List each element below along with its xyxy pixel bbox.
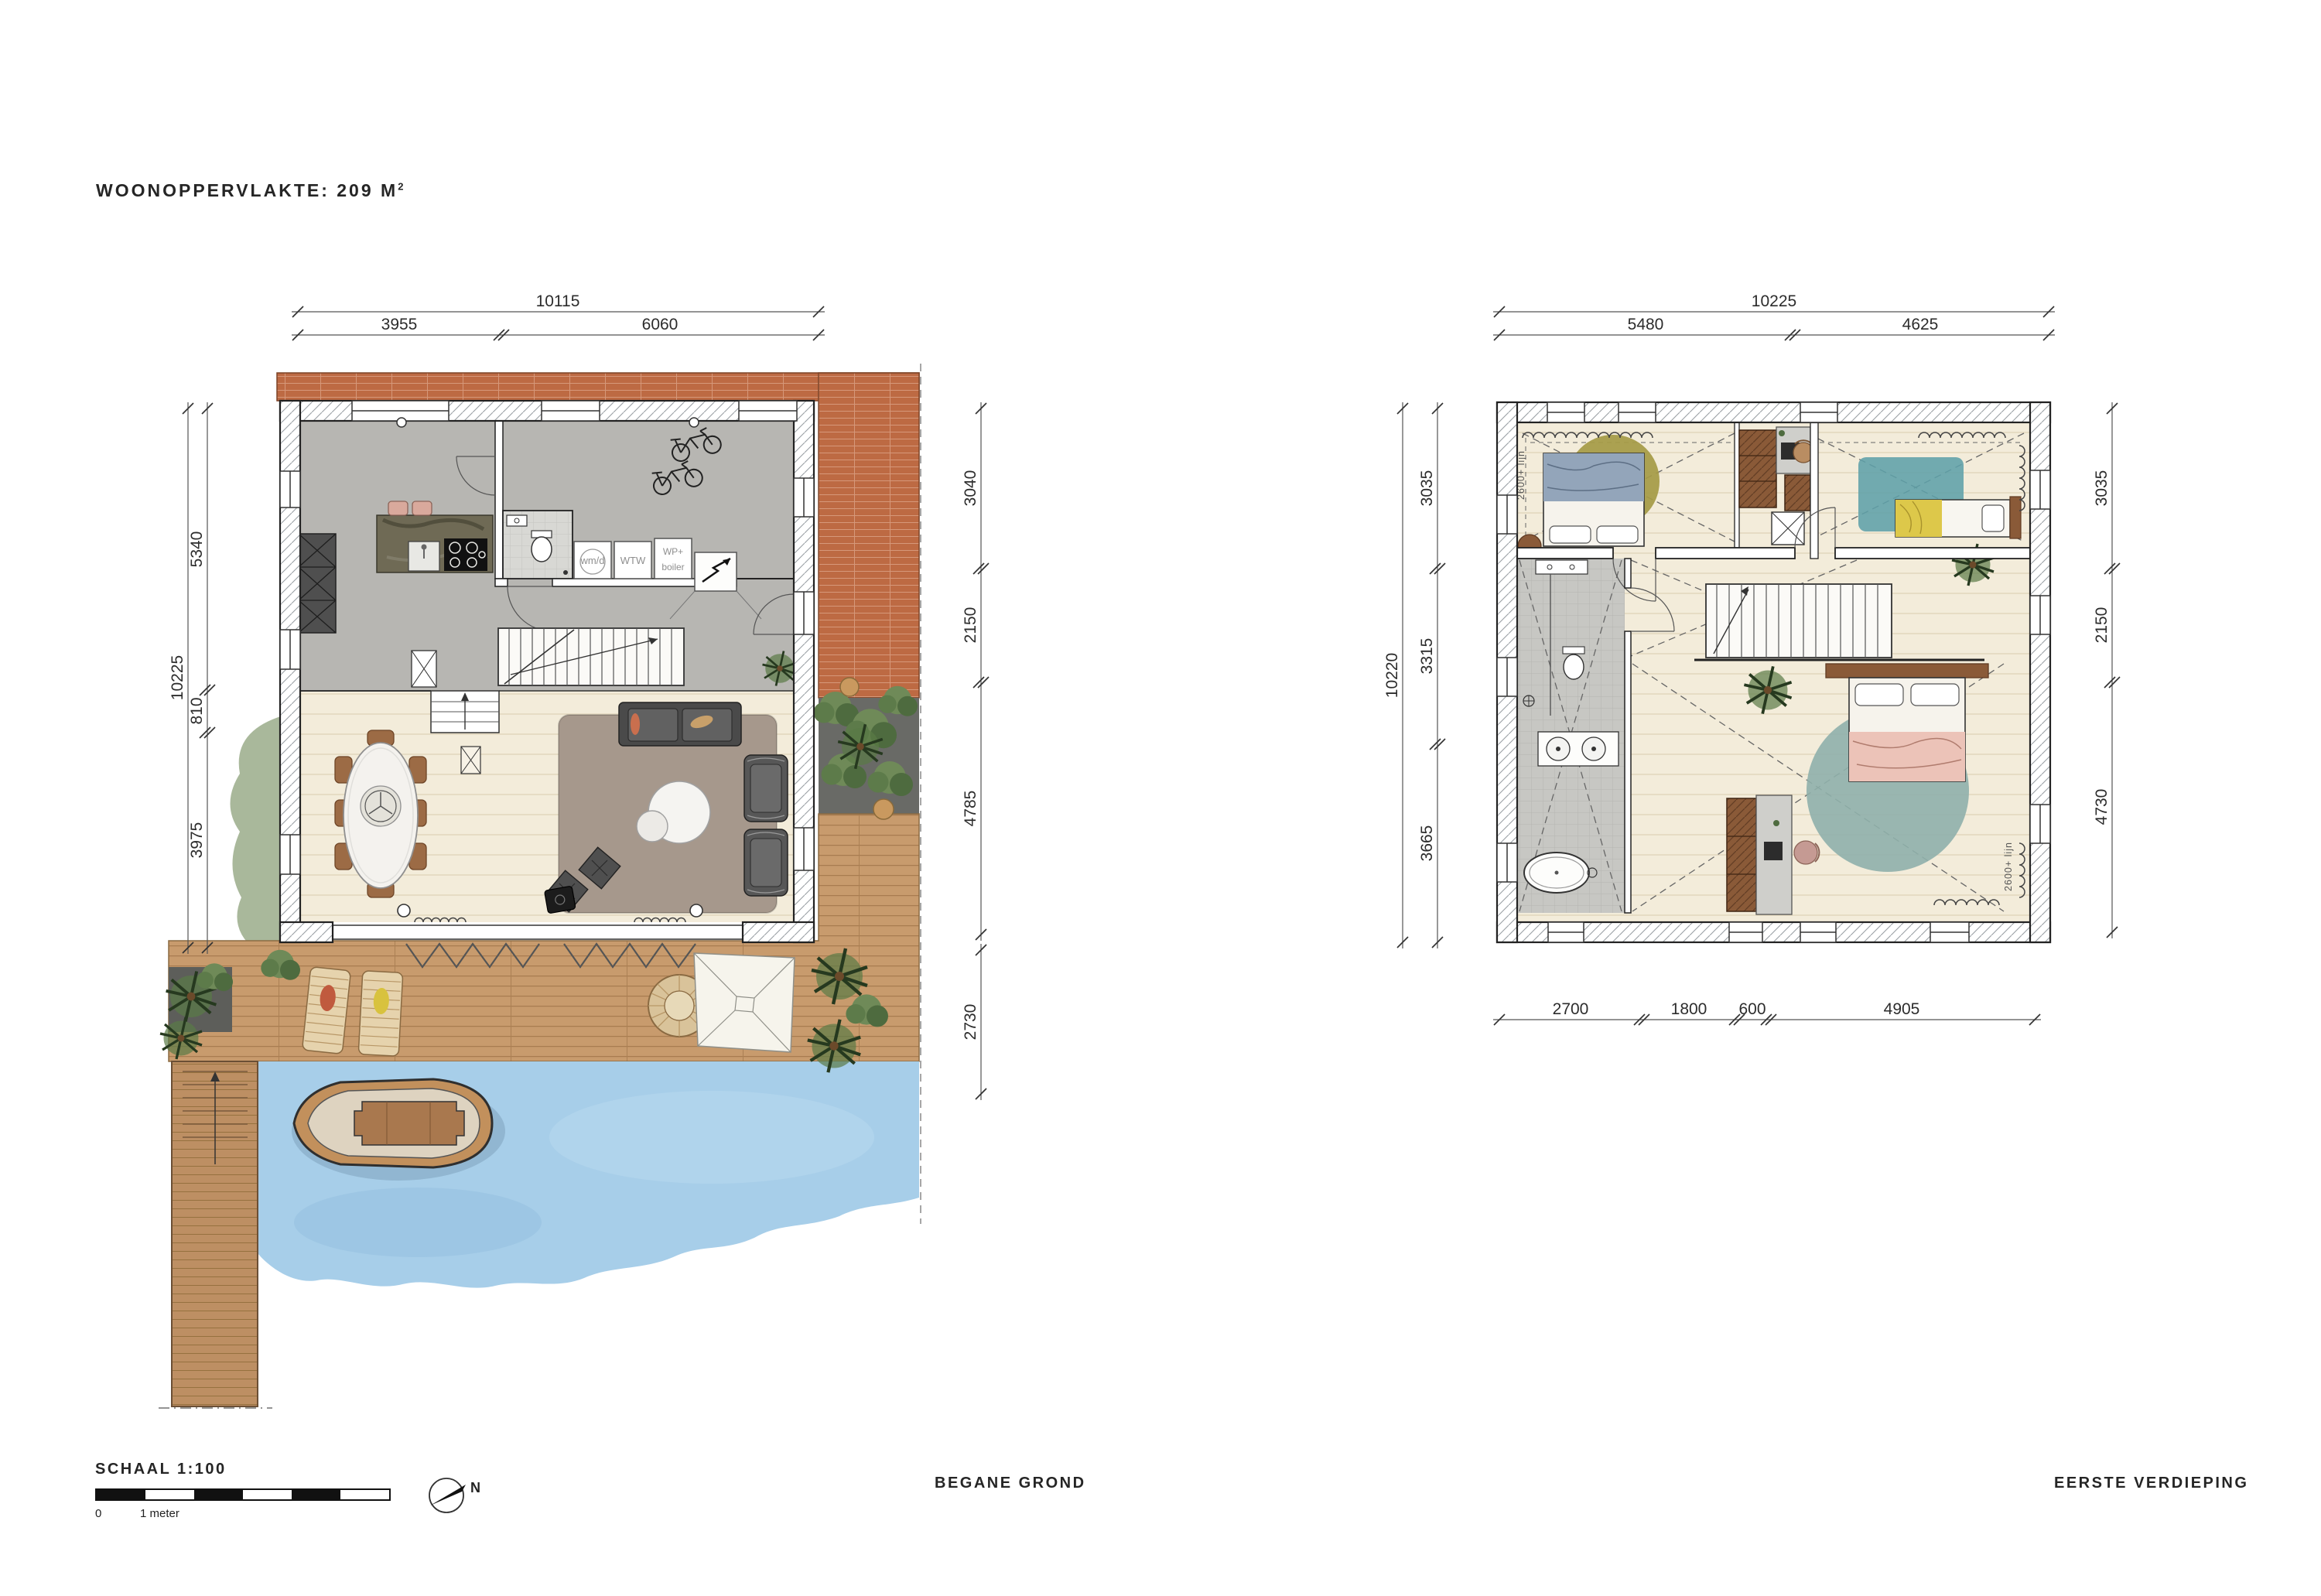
wc-room	[503, 511, 573, 579]
dim-label: 5480	[1628, 316, 1664, 333]
plan-drawing: wm/d WTW WP+ boiler	[0, 0, 2321, 1596]
bath-shelf	[1536, 560, 1588, 574]
dim-label: 4785	[962, 791, 979, 827]
dim-label: 10225	[1752, 292, 1796, 310]
interior-wall	[495, 421, 503, 579]
height-line-annotation: 2600+ lijn	[2003, 842, 2014, 891]
toilet	[1564, 654, 1584, 679]
washer-label: wm/d	[579, 555, 604, 566]
bed-master	[1826, 664, 1988, 781]
scale-bar-segment	[243, 1490, 292, 1499]
floorplan-sheet: wm/d WTW WP+ boiler	[0, 0, 2321, 1596]
dim-label: 600	[1738, 1000, 1766, 1018]
north-label: N	[470, 1480, 480, 1495]
dim-label: 10220	[1383, 653, 1401, 698]
armchair	[744, 755, 788, 822]
sun-lounger	[302, 967, 350, 1054]
dim-label: 4625	[1902, 316, 1939, 333]
desk-area	[1776, 427, 1813, 473]
lounge-area	[544, 702, 788, 914]
dim-label: 3665	[1418, 825, 1436, 862]
bed-single	[1895, 497, 2021, 538]
dim-label: 3975	[188, 822, 206, 859]
side-table	[637, 811, 668, 842]
bar-stool	[412, 501, 432, 515]
scale-bar-segment	[145, 1490, 194, 1499]
dim-label: 2150	[962, 607, 979, 644]
scale-bar-segment	[340, 1490, 389, 1499]
armchair	[744, 829, 788, 896]
scale-bar-segment	[292, 1490, 340, 1499]
title-text: WOONOPPERVLAKTE: 209 M	[96, 180, 398, 200]
dim-label: 2150	[2093, 607, 2111, 644]
dim-label: 2730	[962, 1004, 979, 1041]
storage-cabinet	[299, 534, 336, 633]
scale-meter-label: 1 meter	[140, 1507, 179, 1520]
title-sup: 2	[398, 180, 405, 192]
toilet	[532, 537, 552, 562]
entry-steps	[431, 691, 499, 733]
wardrobe	[1785, 475, 1810, 511]
appliance-wtw: WTW	[614, 542, 651, 579]
dim-label: 1800	[1671, 1000, 1707, 1018]
dim-label: 3315	[1418, 638, 1436, 675]
dim-label: 10225	[169, 655, 186, 700]
wardrobe	[1739, 430, 1776, 508]
scale-bar-segment	[194, 1490, 243, 1499]
dim-label: 3040	[962, 470, 979, 507]
wtw-label: WTW	[620, 555, 646, 566]
boat	[292, 1079, 505, 1181]
dim-label: 5340	[188, 531, 206, 568]
bedroom-divider-wall	[1517, 548, 2030, 559]
page-title: WOONOPPERVLAKTE: 209 M2	[96, 180, 405, 201]
dim-label: 10115	[536, 292, 580, 310]
first-floor-plan: 2600+ lijn 2600+ lijn	[1383, 292, 2120, 1025]
wp-label: WP+	[663, 546, 683, 557]
north-arrow: N	[429, 1478, 480, 1512]
dim-label: 3035	[2093, 470, 2111, 507]
garden-green-patch	[231, 716, 284, 953]
stove	[444, 538, 487, 571]
ground-floor-plan: wm/d WTW WP+ boiler	[159, 292, 989, 1408]
dim-label: 4730	[2093, 789, 2111, 825]
dim-label: 3955	[381, 316, 418, 333]
appliance-heatpump: WP+ boiler	[655, 538, 692, 579]
scale-label: SCHAAL 1:100	[95, 1461, 227, 1478]
shade-sail	[694, 953, 795, 1052]
headboard	[1826, 664, 1988, 678]
scale-bar	[95, 1488, 391, 1501]
dim-label: 3035	[1418, 470, 1436, 507]
laptop	[1764, 842, 1783, 860]
wc-sink	[507, 515, 527, 526]
dim-label: 6060	[642, 316, 679, 333]
appliance-washer: wm/d	[574, 542, 611, 579]
dim-label: 810	[188, 697, 206, 724]
boiler-label: boiler	[661, 562, 684, 572]
desk-chair	[1794, 841, 1817, 864]
neighbor-roof-right	[819, 373, 919, 698]
sun-lounger	[358, 971, 403, 1057]
sofa	[619, 702, 741, 746]
ground-floor-label: BEGANE GROND	[935, 1475, 1086, 1492]
first-floor-label: EERSTE VERDIEPING	[2054, 1475, 2248, 1492]
bar-stool	[388, 501, 408, 515]
staircase	[498, 628, 684, 685]
dim-label: 2700	[1553, 1000, 1589, 1018]
scale-bar-segment	[97, 1490, 145, 1499]
scale-zero-label: 0	[95, 1507, 101, 1520]
wood-stove	[544, 886, 576, 914]
wardrobe	[1727, 798, 1756, 911]
dim-label: 4905	[1884, 1000, 1920, 1018]
